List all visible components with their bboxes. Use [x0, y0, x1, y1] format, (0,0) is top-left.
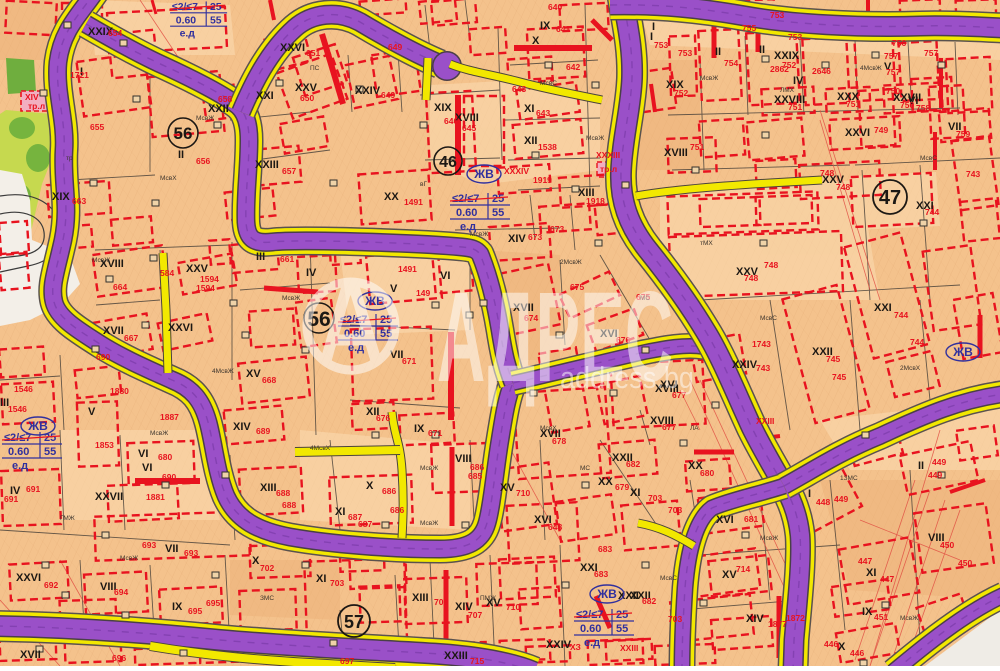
svg-text:ЛМХ: ЛМХ — [780, 87, 795, 94]
svg-text:XXIII: XXIII — [444, 650, 468, 662]
svg-text:680: 680 — [158, 452, 172, 462]
svg-text:ЖВ: ЖВ — [596, 587, 617, 601]
svg-text:671: 671 — [428, 428, 442, 438]
svg-text:703: 703 — [668, 505, 682, 515]
svg-text:X: X — [838, 641, 846, 653]
svg-text:757: 757 — [924, 48, 938, 58]
svg-text:56: 56 — [174, 124, 193, 143]
svg-text:1491: 1491 — [398, 264, 417, 274]
svg-text:I: I — [652, 21, 655, 33]
svg-text:447: 447 — [880, 574, 894, 584]
svg-text:МсвХ: МсвХ — [160, 175, 177, 182]
svg-text:149: 149 — [416, 288, 430, 298]
svg-text:663: 663 — [72, 196, 86, 206]
svg-text:743: 743 — [756, 363, 770, 373]
svg-text:449: 449 — [834, 494, 848, 504]
svg-text:645: 645 — [462, 123, 476, 133]
svg-text:XVII: XVII — [20, 649, 41, 661]
svg-text:752: 752 — [674, 88, 688, 98]
svg-text:тМХ: тМХ — [700, 240, 713, 247]
svg-text:748: 748 — [744, 273, 758, 283]
svg-text:694: 694 — [114, 587, 128, 597]
svg-text:750: 750 — [886, 86, 900, 96]
svg-text:тр: тр — [66, 155, 73, 162]
svg-text:XXIV: XXIV — [732, 359, 758, 371]
svg-text:XI: XI — [316, 573, 326, 585]
svg-text:650: 650 — [300, 93, 314, 103]
svg-text:685: 685 — [468, 471, 482, 481]
svg-text:X: X — [366, 480, 374, 492]
svg-text:XI: XI — [524, 103, 534, 115]
svg-text:671: 671 — [402, 356, 416, 366]
svg-text:е.д: е.д — [180, 29, 196, 40]
svg-text:1880: 1880 — [110, 386, 129, 396]
svg-text:МсвЖ: МсвЖ — [120, 555, 138, 562]
svg-text:XII: XII — [524, 135, 537, 147]
svg-text:57: 57 — [344, 612, 364, 632]
svg-text:I: I — [808, 488, 811, 500]
svg-text:МсвЖ: МсвЖ — [760, 535, 778, 542]
svg-text:XXVII: XXVII — [95, 491, 123, 503]
svg-text:25: 25 — [492, 193, 504, 205]
svg-text:ХЗ: ХЗ — [570, 642, 581, 652]
svg-text:448: 448 — [816, 497, 830, 507]
svg-text:55: 55 — [210, 15, 222, 26]
svg-text:640: 640 — [548, 2, 562, 12]
svg-text:XXVI: XXVI — [16, 572, 41, 584]
svg-text:1918: 1918 — [586, 196, 605, 206]
svg-text:691: 691 — [4, 494, 18, 504]
svg-text:XV: XV — [246, 368, 261, 380]
svg-text:744: 744 — [910, 337, 924, 347]
svg-text:XXI: XXI — [874, 302, 892, 314]
svg-text:V: V — [88, 406, 96, 418]
svg-text:697: 697 — [340, 656, 354, 666]
svg-text:703: 703 — [330, 578, 344, 588]
svg-text:25: 25 — [616, 609, 628, 621]
svg-text:ПМЖ: ПМЖ — [480, 595, 496, 602]
svg-text:II: II — [715, 46, 721, 58]
svg-text:XI: XI — [335, 506, 345, 518]
svg-text:1919: 1919 — [533, 175, 552, 185]
svg-text:XXVI: XXVI — [845, 127, 870, 139]
svg-text:IX: IX — [414, 423, 425, 435]
svg-text:МсвС: МсвС — [660, 575, 677, 582]
svg-text:649: 649 — [381, 90, 395, 100]
svg-text:25: 25 — [210, 2, 222, 13]
svg-text:XIV: XIV — [508, 233, 526, 245]
svg-text:641: 641 — [556, 24, 570, 34]
svg-text:ЗМС: ЗМС — [260, 595, 274, 602]
svg-text:XVII: XVII — [103, 325, 124, 337]
svg-text:706: 706 — [434, 597, 448, 607]
svg-text:657: 657 — [282, 166, 296, 176]
svg-text:690: 690 — [162, 472, 176, 482]
svg-text:751: 751 — [690, 142, 704, 152]
svg-text:1721: 1721 — [70, 70, 89, 80]
svg-text:МсвЖ: МсвЖ — [420, 465, 438, 472]
svg-text:25: 25 — [44, 432, 56, 444]
svg-text:648: 648 — [548, 522, 562, 532]
svg-text:753: 753 — [654, 40, 668, 50]
svg-text:ПС: ПС — [310, 65, 320, 72]
svg-text:752: 752 — [782, 60, 796, 70]
svg-text:682: 682 — [626, 459, 640, 469]
svg-text:XXXIII: XXXIII — [596, 150, 620, 160]
svg-text:687: 687 — [358, 519, 372, 529]
svg-text:2МсвЖ: 2МсвЖ — [560, 259, 582, 266]
svg-text:ЖВ: ЖВ — [952, 345, 973, 359]
svg-text:МсвС: МсвС — [920, 155, 937, 162]
svg-text:450: 450 — [940, 540, 954, 550]
svg-text:748: 748 — [764, 260, 778, 270]
svg-text:МсвЖ: МсвЖ — [150, 430, 168, 437]
svg-text:е.д: е.д — [12, 460, 28, 472]
svg-text:XXIII: XXIII — [255, 159, 279, 171]
svg-text:753: 753 — [770, 10, 784, 20]
svg-text:1ЗМС: 1ЗМС — [840, 475, 858, 482]
svg-text:679: 679 — [615, 482, 629, 492]
svg-text:XIII: XIII — [260, 482, 277, 494]
svg-text:714: 714 — [736, 564, 750, 574]
svg-text:703: 703 — [668, 614, 682, 624]
svg-text:673: 673 — [550, 224, 564, 234]
svg-text:XXVI: XXVI — [280, 42, 305, 54]
svg-text:710: 710 — [506, 602, 520, 612]
svg-text:750: 750 — [900, 100, 914, 110]
svg-text:XIX: XIX — [52, 191, 70, 203]
svg-text:661: 661 — [280, 254, 294, 264]
svg-text:744: 744 — [894, 310, 908, 320]
svg-text:681: 681 — [744, 514, 758, 524]
svg-text:МсвЖ: МсвЖ — [282, 295, 300, 302]
svg-text:1743: 1743 — [752, 339, 771, 349]
svg-text:ЖВ: ЖВ — [27, 419, 48, 433]
svg-text:753: 753 — [678, 48, 692, 58]
svg-text:757: 757 — [886, 67, 900, 77]
svg-text:702: 702 — [260, 563, 274, 573]
svg-text:address.bg: address.bg — [560, 360, 694, 395]
svg-text:ЖВ: ЖВ — [473, 167, 494, 181]
svg-text:688: 688 — [282, 500, 296, 510]
svg-text:55: 55 — [44, 446, 56, 458]
svg-text:743: 743 — [966, 169, 980, 179]
svg-text:МсвС: МсвС — [540, 80, 557, 87]
svg-text:XI: XI — [866, 567, 876, 579]
svg-text:V: V — [390, 283, 398, 295]
svg-text:1538: 1538 — [538, 142, 557, 152]
svg-text:1872: 1872 — [786, 613, 805, 623]
svg-text:47: 47 — [879, 187, 901, 209]
svg-text:XXIV: XXIV — [355, 85, 381, 97]
svg-text:X: X — [252, 555, 260, 567]
svg-text:II: II — [759, 44, 765, 56]
svg-text:XIV: XIV — [233, 421, 251, 433]
svg-text:1881: 1881 — [146, 492, 165, 502]
svg-text:XVI: XVI — [716, 514, 734, 526]
svg-text:1594: 1594 — [196, 283, 215, 293]
svg-text:745: 745 — [826, 354, 840, 364]
svg-text:0.60: 0.60 — [456, 207, 477, 219]
svg-text:0.60: 0.60 — [580, 623, 601, 635]
svg-text:715: 715 — [470, 656, 484, 666]
svg-text:691: 691 — [26, 484, 40, 494]
svg-text:МС: МС — [580, 465, 590, 472]
svg-text:584: 584 — [160, 268, 174, 278]
svg-text:XXVI: XXVI — [168, 322, 193, 334]
svg-text:МсвЖ: МсвЖ — [92, 257, 110, 264]
svg-text:654: 654 — [108, 28, 122, 38]
svg-text:IV: IV — [793, 75, 804, 87]
svg-text:XVIII: XVIII — [664, 147, 688, 159]
svg-text:656: 656 — [196, 156, 210, 166]
svg-text:664: 664 — [113, 282, 127, 292]
svg-text:643: 643 — [512, 84, 526, 94]
svg-text:689: 689 — [256, 426, 270, 436]
svg-text:682: 682 — [642, 596, 656, 606]
svg-text:XXIV: XXIV — [546, 639, 572, 651]
svg-text:683: 683 — [594, 569, 608, 579]
svg-text:XX: XX — [598, 476, 613, 488]
svg-text:XXIII: XXIII — [620, 643, 638, 653]
svg-text:XXII: XXII — [618, 590, 639, 602]
svg-text:55: 55 — [616, 623, 628, 635]
svg-text:748: 748 — [836, 182, 850, 192]
svg-text:751: 751 — [846, 99, 860, 109]
svg-text:658: 658 — [218, 94, 232, 104]
svg-text:IX: IX — [540, 20, 551, 32]
svg-text:676: 676 — [376, 413, 390, 423]
svg-text:IX: IX — [172, 601, 183, 613]
svg-text:2646: 2646 — [812, 66, 831, 76]
svg-text:XXI: XXI — [256, 90, 274, 102]
svg-text:686: 686 — [382, 486, 396, 496]
svg-text:III: III — [256, 251, 265, 263]
svg-text:751: 751 — [788, 102, 802, 112]
svg-text:655: 655 — [90, 122, 104, 132]
svg-text:1546: 1546 — [8, 404, 27, 414]
svg-text:446: 446 — [850, 648, 864, 658]
svg-text:МсвЖ: МсвЖ — [700, 75, 718, 82]
svg-text:XXII: XXII — [208, 103, 229, 115]
svg-text:703: 703 — [648, 493, 662, 503]
svg-text:446: 446 — [824, 639, 838, 649]
svg-text:XXXIV: XXXIV — [504, 166, 529, 176]
svg-text:707: 707 — [468, 610, 482, 620]
svg-text:693: 693 — [184, 548, 198, 558]
svg-text:4МсвЖ: 4МсвЖ — [860, 65, 882, 72]
svg-text:1887: 1887 — [160, 412, 179, 422]
svg-text:680: 680 — [700, 468, 714, 478]
svg-text:XV: XV — [500, 482, 515, 494]
svg-text:754: 754 — [724, 58, 738, 68]
svg-text:758: 758 — [916, 103, 930, 113]
svg-text:748: 748 — [820, 168, 834, 178]
svg-text:710: 710 — [516, 488, 530, 498]
svg-text:749: 749 — [874, 125, 888, 135]
svg-text:757: 757 — [884, 51, 898, 61]
svg-text:вГ: вГ — [420, 181, 427, 188]
svg-text:е.д: е.д — [584, 637, 600, 649]
svg-text:ЛА: ЛА — [690, 425, 699, 432]
svg-text:690: 690 — [96, 352, 110, 362]
svg-text:XIV: XIV — [746, 613, 764, 625]
svg-text:МсвЖ: МсвЖ — [900, 615, 918, 622]
svg-text:744: 744 — [925, 207, 939, 217]
svg-text:2МсвХ: 2МсвХ — [900, 365, 921, 372]
svg-text:тр.л: тр.л — [28, 101, 45, 111]
svg-text:695: 695 — [206, 598, 220, 608]
svg-text:1853: 1853 — [95, 440, 114, 450]
svg-text:0.60: 0.60 — [176, 15, 197, 26]
svg-text:693: 693 — [142, 540, 156, 550]
svg-text:4МсвХ: 4МсвХ — [310, 445, 331, 452]
svg-text:450: 450 — [958, 558, 972, 568]
svg-text:е.д: е.д — [460, 221, 476, 233]
svg-text:649: 649 — [388, 42, 402, 52]
svg-text:55: 55 — [492, 207, 504, 219]
svg-text:756: 756 — [892, 38, 906, 48]
svg-text:667: 667 — [124, 333, 138, 343]
svg-text:695: 695 — [188, 606, 202, 616]
svg-text:МсвС: МсвС — [760, 315, 777, 322]
svg-text:VI: VI — [142, 462, 152, 474]
svg-text:ГМЖ: ГМЖ — [60, 515, 75, 522]
svg-text:IX: IX — [862, 606, 873, 618]
svg-text:4МсвЖ: 4МсвЖ — [212, 368, 234, 375]
svg-text:449: 449 — [932, 457, 946, 467]
svg-text:692: 692 — [44, 580, 58, 590]
svg-text:МсвЖ: МсвЖ — [196, 115, 214, 122]
svg-text:МсвЖ: МсвЖ — [586, 135, 604, 142]
svg-text:46: 46 — [439, 154, 457, 171]
svg-text:678: 678 — [552, 436, 566, 446]
svg-text:651: 651 — [306, 48, 320, 58]
svg-text:686: 686 — [390, 505, 404, 515]
svg-text:XI: XI — [630, 487, 640, 499]
svg-text:642: 642 — [566, 62, 580, 72]
svg-text:447: 447 — [858, 556, 872, 566]
svg-text:643: 643 — [536, 108, 550, 118]
svg-text:755: 755 — [742, 23, 756, 33]
svg-text:II: II — [918, 460, 924, 472]
svg-text:IV: IV — [306, 267, 317, 279]
svg-text:XXIII: XXIII — [756, 416, 774, 426]
svg-text:тр.л: тр.л — [600, 164, 617, 174]
svg-text:688: 688 — [276, 488, 290, 498]
svg-text:673: 673 — [528, 232, 542, 242]
svg-text:0.60: 0.60 — [8, 446, 29, 458]
svg-text:753: 753 — [788, 32, 802, 42]
svg-text:668: 668 — [262, 375, 276, 385]
svg-text:1546: 1546 — [14, 384, 33, 394]
svg-text:VII: VII — [165, 543, 178, 555]
svg-text:VI: VI — [138, 448, 148, 460]
svg-text:451: 451 — [874, 612, 888, 622]
svg-text:МсвЖ: МсвЖ — [420, 520, 438, 527]
svg-text:XIX: XIX — [434, 102, 452, 114]
svg-text:646: 646 — [444, 116, 458, 126]
svg-text:745: 745 — [832, 372, 846, 382]
svg-text:759: 759 — [956, 129, 970, 139]
svg-text:1877: 1877 — [768, 619, 787, 629]
svg-text:696: 696 — [112, 653, 126, 663]
svg-text:1491: 1491 — [404, 197, 423, 207]
svg-text:683: 683 — [598, 544, 612, 554]
svg-text:XIII: XIII — [412, 592, 429, 604]
svg-text:XX: XX — [384, 191, 399, 203]
svg-text:449: 449 — [928, 470, 942, 480]
svg-text:X: X — [532, 35, 540, 47]
svg-text:677: 677 — [662, 422, 676, 432]
svg-text:МсвХ: МсвХ — [540, 425, 557, 432]
svg-text:II: II — [178, 149, 184, 161]
